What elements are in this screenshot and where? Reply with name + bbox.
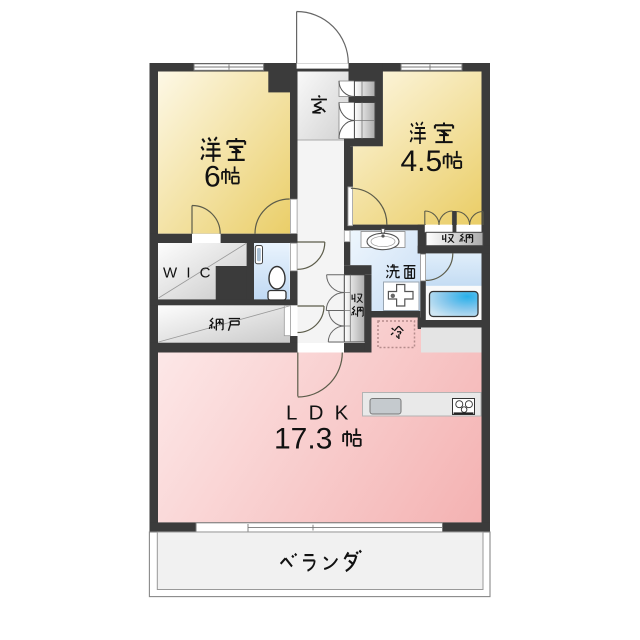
svg-text:4.5: 4.5 xyxy=(401,145,443,178)
svg-text:W I C: W I C xyxy=(163,265,213,282)
svg-text:LDK: LDK xyxy=(286,402,359,425)
svg-text:17.3: 17.3 xyxy=(274,423,332,456)
svg-text:6: 6 xyxy=(204,161,221,194)
